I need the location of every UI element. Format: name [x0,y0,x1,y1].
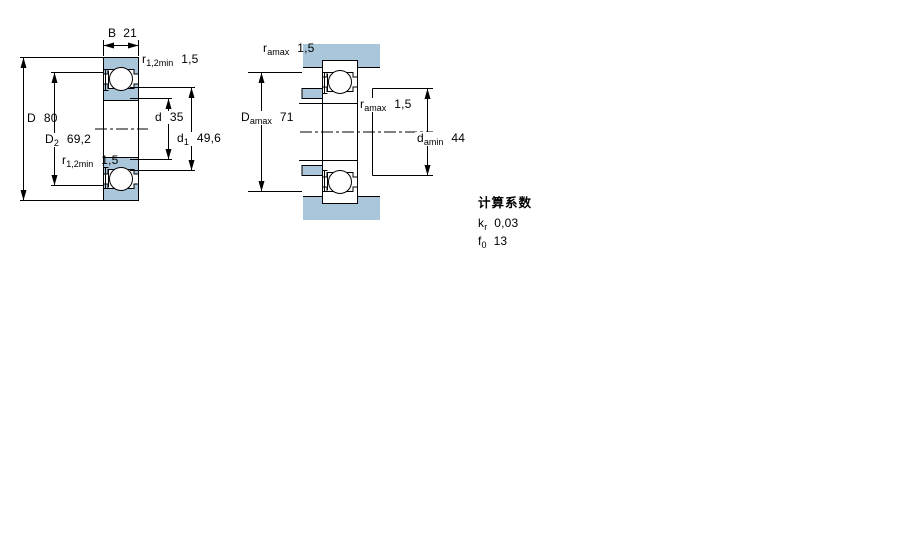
ball [329,71,352,94]
ball [110,168,133,191]
mounting-dimensions-figure [248,44,433,220]
dimension-d [130,99,172,160]
dim-label-r12-top: r1,2min1,5 [142,53,199,67]
dim-label-ra-mid: ramax1,5 [358,98,414,112]
mounted-bearing-section-top [323,61,358,104]
factor-f0: f013 [478,235,507,249]
dim-label-d: d35 [153,111,186,124]
shaft-shoulder-top [302,89,323,99]
calculation-factors-title: 计算系数 [478,197,532,210]
dim-label-B: B21 [108,27,137,40]
shaft-shoulder-bottom [302,166,323,176]
bearing-datasheet-page: B21 r1,2min1,5 D80 D269,2 r1,2min1,5 d35… [0,0,900,560]
dimension-Da [248,73,302,192]
bearing-section-top [104,58,139,101]
dimension-D [20,58,103,201]
dim-label-ra-top: ramax1,5 [263,42,315,56]
mounted-bearing-section-bottom [323,161,358,204]
factor-kr: kr0,03 [478,217,518,231]
dim-label-D2: D269,2 [43,133,93,147]
dimension-B [104,40,139,56]
dim-label-Da: Damax71 [239,111,296,125]
dim-label-D: D80 [27,112,58,125]
dim-label-r12-mid: r1,2min1,5 [62,154,119,168]
dim-label-d1: d149,6 [175,132,223,146]
dim-label-da: damin44 [415,132,467,146]
technical-drawing-canvas [0,0,900,560]
ball [329,171,352,194]
ball [110,68,133,91]
